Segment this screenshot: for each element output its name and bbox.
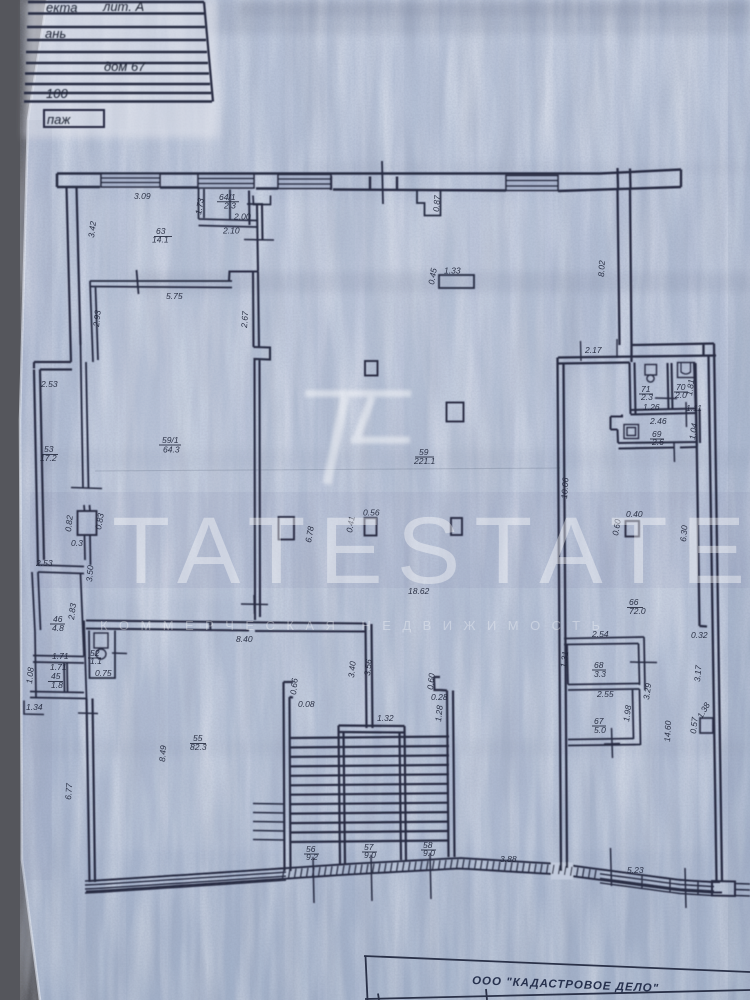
svg-text:0.66: 0.66 — [288, 677, 300, 695]
svg-text:5.23: 5.23 — [627, 865, 644, 875]
svg-text:5.75: 5.75 — [166, 291, 183, 301]
svg-text:0.08: 0.08 — [298, 699, 315, 709]
svg-text:2.53: 2.53 — [40, 379, 58, 389]
svg-text:3.42: 3.42 — [86, 220, 98, 238]
svg-text:0.32: 0.32 — [691, 630, 708, 640]
svg-text:2.00: 2.00 — [233, 212, 251, 222]
svg-text:2.67: 2.67 — [239, 311, 250, 329]
svg-text:2.53: 2.53 — [35, 558, 53, 568]
svg-text:0.28: 0.28 — [431, 692, 448, 702]
svg-text:2.93: 2.93 — [91, 309, 103, 328]
svg-text:1.33: 1.33 — [444, 266, 461, 276]
svg-text:дом 67: дом 67 — [104, 59, 146, 74]
svg-text:3.09: 3.09 — [134, 191, 151, 201]
svg-text:3.88: 3.88 — [500, 854, 517, 864]
svg-text:3.17: 3.17 — [692, 665, 703, 683]
svg-text:паж: паж — [47, 112, 71, 127]
svg-text:1.11: 1.11 — [686, 403, 702, 413]
svg-text:3.40: 3.40 — [346, 660, 358, 678]
svg-text:0.87: 0.87 — [431, 195, 442, 212]
svg-text:екта: екта — [46, 0, 77, 15]
svg-text:2.46: 2.46 — [649, 416, 667, 426]
svg-text:8.49: 8.49 — [157, 745, 168, 762]
svg-text:1.28: 1.28 — [433, 704, 445, 722]
svg-text:64.3: 64.3 — [163, 445, 180, 455]
svg-text:0.3: 0.3 — [71, 538, 83, 548]
svg-text:2.55: 2.55 — [596, 689, 614, 699]
svg-text:2.17: 2.17 — [584, 345, 602, 355]
svg-text:ань: ань — [45, 26, 66, 41]
svg-text:лит. А: лит. А — [102, 0, 144, 14]
svg-text:1.71: 1.71 — [52, 651, 69, 661]
svg-text:3.56: 3.56 — [362, 658, 374, 676]
svg-text:1.08: 1.08 — [24, 666, 36, 684]
svg-text:14.60: 14.60 — [662, 720, 673, 742]
svg-text:8.02: 8.02 — [596, 260, 607, 277]
svg-text:10.06: 10.06 — [559, 477, 570, 499]
svg-text:59/1: 59/1 — [162, 435, 179, 445]
svg-text:100: 100 — [46, 86, 68, 101]
svg-text:0.75: 0.75 — [95, 668, 112, 678]
svg-text:0.82: 0.82 — [63, 514, 75, 532]
svg-text:1.32: 1.32 — [377, 713, 394, 723]
svg-text:0.57: 0.57 — [688, 716, 700, 734]
svg-text:6.77: 6.77 — [63, 783, 74, 800]
svg-text:3.50: 3.50 — [84, 565, 95, 583]
svg-text:1.34: 1.34 — [26, 702, 43, 712]
svg-text:2.10: 2.10 — [222, 226, 240, 236]
svg-text:TATESTATE: TATESTATE — [112, 498, 745, 604]
svg-text:8.40: 8.40 — [236, 634, 253, 644]
svg-text:0.60: 0.60 — [425, 672, 437, 690]
svg-text:1.26: 1.26 — [643, 402, 660, 412]
